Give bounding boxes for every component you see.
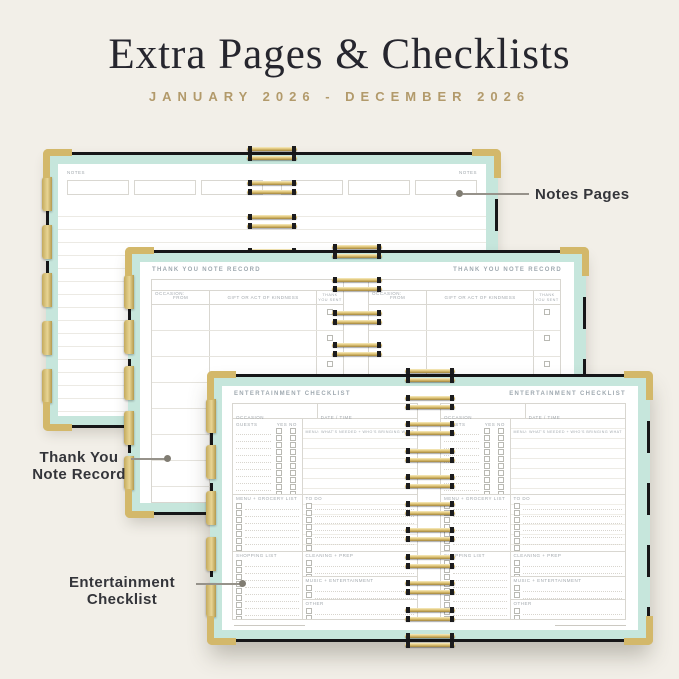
checkbox (514, 538, 520, 544)
callout-thank-you: Thank You Note Record (25, 449, 133, 483)
checkbox (514, 560, 520, 566)
checkbox (290, 435, 296, 441)
checklist-row (236, 538, 299, 545)
todo-section: TO DO (303, 495, 418, 552)
page-subtitle: JANUARY 2026 - DECEMBER 2026 (0, 89, 679, 104)
other-section: OTHER (303, 600, 418, 619)
checkbox (236, 588, 242, 594)
checklist-row (514, 592, 623, 599)
checklist-row (236, 517, 299, 524)
entertainment-sheet: OCCASION DATE / TIME GUESTS YES NO (232, 403, 418, 620)
coil-rung (247, 224, 297, 228)
coil-rung (332, 320, 382, 324)
coil-loop (247, 215, 297, 228)
checklist-row (236, 588, 299, 595)
checkbox (306, 510, 312, 516)
gold-corner-icon (624, 616, 653, 645)
coil-rung (405, 396, 455, 400)
checkbox (290, 484, 296, 490)
occasion-datetime-row: OCCASION DATE / TIME (441, 404, 625, 419)
coil-rung (332, 343, 382, 347)
gold-tab (42, 177, 52, 211)
coil-rung (405, 378, 455, 382)
checkbox (236, 517, 242, 523)
coil-rung (332, 352, 382, 356)
checklist-row (236, 616, 299, 619)
checkbox (276, 484, 282, 490)
coil-rung (405, 422, 455, 426)
callout-line (131, 458, 165, 460)
table-row (369, 331, 560, 357)
checkbox (236, 567, 242, 573)
gold-corner-icon (207, 371, 236, 400)
checkbox (514, 615, 520, 619)
checklist-row (514, 510, 623, 517)
coil-loop (405, 369, 455, 382)
checkbox (306, 524, 312, 530)
checklist-row (236, 531, 299, 538)
gold-corner-icon (43, 149, 72, 178)
callout-line (463, 193, 529, 195)
checklist-row (514, 567, 623, 574)
coil-loop (405, 608, 455, 621)
checkbox (484, 442, 490, 448)
callout-entertainment: Entertainment Checklist (48, 574, 196, 608)
gold-tab (42, 225, 52, 259)
checkbox (236, 545, 242, 551)
checkbox (498, 484, 504, 490)
guest-row (236, 428, 299, 435)
checklist-row (306, 608, 415, 615)
note-boxes (67, 180, 263, 195)
checklist-row (236, 545, 299, 552)
entertainment-title: ENTERTAINMENT CHECKLIST (234, 391, 351, 397)
checkbox (306, 503, 312, 509)
checkbox (498, 442, 504, 448)
coil-rung (405, 555, 455, 559)
table-header: FROM GIFT OR ACT OF KINDNESS THANK YOU S… (152, 291, 343, 305)
coil-rung (247, 215, 297, 219)
gold-tab (206, 445, 216, 479)
col-sent: THANK YOU SENT (534, 291, 560, 304)
checklist-row (236, 609, 299, 616)
checklist-row (514, 545, 623, 552)
checklist-row (514, 524, 623, 531)
checkbox (276, 428, 282, 434)
gold-tab (124, 320, 134, 354)
checkbox (514, 503, 520, 509)
gold-tab (206, 491, 216, 525)
cleaning-section: CLEANING + PREP (303, 552, 418, 577)
checklist-row (514, 608, 623, 615)
checkbox (290, 456, 296, 462)
checkbox (236, 616, 242, 619)
coil-loop (247, 147, 297, 160)
checkbox (514, 592, 520, 598)
checklist-row (236, 560, 299, 567)
checklist-row (236, 510, 299, 517)
checkbox (514, 545, 520, 551)
side-tab-rail (42, 177, 52, 403)
coil-loop (405, 555, 455, 568)
checkbox (498, 463, 504, 469)
checkbox (498, 456, 504, 462)
checklist-row (306, 503, 415, 510)
checkbox (484, 463, 490, 469)
checkbox (236, 524, 242, 530)
coil-rung (405, 458, 455, 462)
checklist-row (514, 560, 623, 567)
coil-loop (405, 449, 455, 462)
gold-tab (124, 275, 134, 309)
note-box (348, 180, 410, 195)
coil-rung (405, 405, 455, 409)
thank-you-title: THANK YOU NOTE RECORD (453, 267, 562, 273)
checkbox (544, 361, 550, 367)
gold-corner-icon (472, 149, 501, 178)
checklist-row (306, 545, 415, 552)
checkbox (290, 442, 296, 448)
gold-tab (206, 537, 216, 571)
spiral-binding (405, 367, 455, 649)
coil-rung (405, 608, 455, 612)
checklist-row (514, 615, 623, 619)
checkbox (514, 510, 520, 516)
checkbox (236, 503, 242, 509)
checklist-row (306, 510, 415, 517)
page-title: Extra Pages & Checklists (0, 30, 679, 79)
callout-label: Entertainment (48, 574, 196, 591)
guest-row (236, 477, 299, 484)
gold-corner-icon (560, 247, 589, 276)
thank-you-title: THANK YOU NOTE RECORD (152, 267, 261, 273)
guest-row (236, 484, 299, 491)
checklist-row (306, 531, 415, 538)
checkbox (484, 456, 490, 462)
callout-notes-pages: Notes Pages (535, 186, 629, 203)
gold-corner-icon (125, 489, 154, 518)
gold-tab (206, 583, 216, 617)
checkbox (236, 510, 242, 516)
coil-rung (332, 245, 382, 249)
checklist-row (514, 517, 623, 524)
checkbox (306, 592, 312, 598)
callout-label: Notes Pages (535, 186, 629, 203)
checkbox (236, 595, 242, 601)
checkbox (236, 560, 242, 566)
other-section: OTHER (511, 600, 626, 619)
entertainment-page-left: ENTERTAINMENT CHECKLIST OCCASION DATE / … (222, 386, 430, 630)
gold-tab (42, 273, 52, 307)
coil-rung (405, 643, 455, 647)
checkbox (276, 470, 282, 476)
callout-dot-icon (239, 580, 246, 587)
checkbox (276, 463, 282, 469)
datetime-field: DATE / TIME (526, 404, 625, 418)
checkbox (498, 470, 504, 476)
checkbox (514, 608, 520, 614)
checklist-row (236, 595, 299, 602)
coil-rung (405, 581, 455, 585)
coil-rung (405, 590, 455, 594)
checkbox (276, 456, 282, 462)
coil-loop (247, 181, 297, 194)
checkbox (498, 428, 504, 434)
checkbox (306, 585, 312, 591)
coil-rung (405, 484, 455, 488)
gold-corner-icon (624, 371, 653, 400)
gold-corner-icon (207, 616, 236, 645)
gold-tab (42, 369, 52, 403)
checkbox (306, 560, 312, 566)
checklist-row (236, 503, 299, 510)
coil-loop (332, 245, 382, 258)
gold-tab (42, 321, 52, 355)
coil-loop (405, 396, 455, 409)
callout-dot-icon (456, 190, 463, 197)
col-gift: GIFT OR ACT OF KINDNESS (210, 291, 317, 304)
checkbox (306, 615, 312, 619)
guest-row (236, 435, 299, 442)
coil-rung (405, 564, 455, 568)
checklist-row (306, 517, 415, 524)
callout-dot-icon (164, 455, 171, 462)
checkbox (236, 609, 242, 615)
checkbox (514, 585, 520, 591)
planner-entertainment-spread: ENTERTAINMENT CHECKLIST OCCASION DATE / … (210, 374, 650, 642)
checkbox (276, 477, 282, 483)
entertainment-title: ENTERTAINMENT CHECKLIST (509, 391, 626, 397)
guest-row (236, 463, 299, 470)
coil-rung (332, 278, 382, 282)
checkbox (276, 435, 282, 441)
coil-loop (405, 475, 455, 488)
checkbox (498, 435, 504, 441)
occasion-field: OCCASION: (369, 280, 560, 291)
entertainment-page-right: ENTERTAINMENT CHECKLIST OCCASION DATE / … (430, 386, 638, 630)
checkbox (514, 531, 520, 537)
col-gift: GIFT OR ACT OF KINDNESS (427, 291, 534, 304)
coil-rung (405, 634, 455, 638)
table-row (152, 305, 343, 331)
callout-label: Thank You (25, 449, 133, 466)
menu-note-section: MENU: WHAT'S NEEDED + WHO'S BRINGING WHA… (303, 419, 418, 495)
checkbox (306, 608, 312, 614)
checkbox (306, 517, 312, 523)
callout-label: Checklist (48, 591, 196, 608)
coil-rung (247, 190, 297, 194)
checkbox (276, 442, 282, 448)
checkbox (484, 470, 490, 476)
checkbox (544, 309, 550, 315)
coil-rung (405, 369, 455, 373)
coil-loop (405, 634, 455, 647)
checklist-row (306, 538, 415, 545)
coil-rung (247, 181, 297, 185)
checklist-row (514, 503, 623, 510)
checklist-row (236, 574, 299, 581)
music-section: MUSIC + ENTERTAINMENT (511, 577, 626, 600)
guest-row (236, 470, 299, 477)
coil-rung (332, 311, 382, 315)
gold-tab (206, 399, 216, 433)
coil-rung (405, 475, 455, 479)
checkbox (236, 531, 242, 537)
footer-microprint (555, 625, 626, 626)
guest-row (236, 449, 299, 456)
coil-rung (332, 254, 382, 258)
checkbox (484, 435, 490, 441)
checklist-row (306, 567, 415, 574)
checkbox (514, 517, 520, 523)
checklist-row (306, 560, 415, 567)
checklist-row (306, 615, 415, 619)
coil-rung (247, 147, 297, 151)
coil-rung (405, 537, 455, 541)
checklist-row (306, 524, 415, 531)
checkbox (306, 545, 312, 551)
guest-row (236, 442, 299, 449)
checklist-row (514, 585, 623, 592)
coil-loop (405, 502, 455, 515)
checkbox (498, 477, 504, 483)
checkbox (276, 449, 282, 455)
occasion-field: OCCASION: (152, 280, 343, 291)
gold-tab (124, 411, 134, 445)
coil-loop (405, 581, 455, 594)
music-section: MUSIC + ENTERTAINMENT (303, 577, 418, 600)
checkbox (306, 531, 312, 537)
callout-label: Note Record (25, 466, 133, 483)
checkbox (236, 602, 242, 608)
coil-rung (405, 617, 455, 621)
coil-loop (405, 422, 455, 435)
note-box (134, 180, 196, 195)
checkbox (544, 335, 550, 341)
header: Extra Pages & Checklists JANUARY 2026 - … (0, 30, 679, 104)
coil-loop (332, 343, 382, 356)
checkbox (290, 463, 296, 469)
menu-note-section: MENU: WHAT'S NEEDED + WHO'S BRINGING WHA… (511, 419, 626, 495)
coil-loop (332, 278, 382, 291)
cleaning-section: CLEANING + PREP (511, 552, 626, 577)
table-header: FROM GIFT OR ACT OF KINDNESS THANK YOU S… (369, 291, 560, 305)
checkbox (290, 477, 296, 483)
menu-grocery-section: MENU + GROCERY LIST (233, 495, 302, 552)
checkbox (498, 449, 504, 455)
checklist-row (236, 524, 299, 531)
gold-corner-icon (125, 247, 154, 276)
guests-section: GUESTS YES NO (233, 419, 302, 495)
coil-rung (405, 502, 455, 506)
checkbox (290, 449, 296, 455)
table-row (369, 305, 560, 331)
checklist-row (514, 531, 623, 538)
note-boxes (281, 180, 477, 195)
table-row (152, 331, 343, 357)
checklist-row (306, 585, 415, 592)
checkbox (514, 567, 520, 573)
checkbox (306, 538, 312, 544)
checkbox (290, 470, 296, 476)
coil-rung (405, 528, 455, 532)
occasion-field: OCCASION (233, 404, 318, 418)
coil-rung (405, 449, 455, 453)
checkbox (514, 524, 520, 530)
checkbox (484, 477, 490, 483)
checklist-row (236, 602, 299, 609)
checklist-row (514, 538, 623, 545)
checkbox (484, 484, 490, 490)
footer-microprint (234, 625, 305, 626)
checklist-row (306, 592, 415, 599)
checkbox (290, 428, 296, 434)
occasion-datetime-row: OCCASION DATE / TIME (233, 404, 417, 419)
checkbox (236, 538, 242, 544)
coil-loop (332, 311, 382, 324)
callout-line (196, 583, 240, 585)
col-from: FROM (152, 291, 210, 304)
checkbox (306, 567, 312, 573)
coil-rung (332, 287, 382, 291)
checklist-row (236, 567, 299, 574)
checkbox (484, 449, 490, 455)
gold-corner-icon (43, 402, 72, 431)
entertainment-sheet: OCCASION DATE / TIME GUESTS YES NO (440, 403, 626, 620)
coil-loop (405, 528, 455, 541)
coil-rung (405, 511, 455, 515)
todo-section: TO DO (511, 495, 626, 552)
coil-rung (405, 431, 455, 435)
datetime-field: DATE / TIME (318, 404, 417, 418)
coil-rung (247, 156, 297, 160)
guest-row (236, 456, 299, 463)
checkbox (484, 428, 490, 434)
gold-tab (124, 366, 134, 400)
note-box (67, 180, 129, 195)
